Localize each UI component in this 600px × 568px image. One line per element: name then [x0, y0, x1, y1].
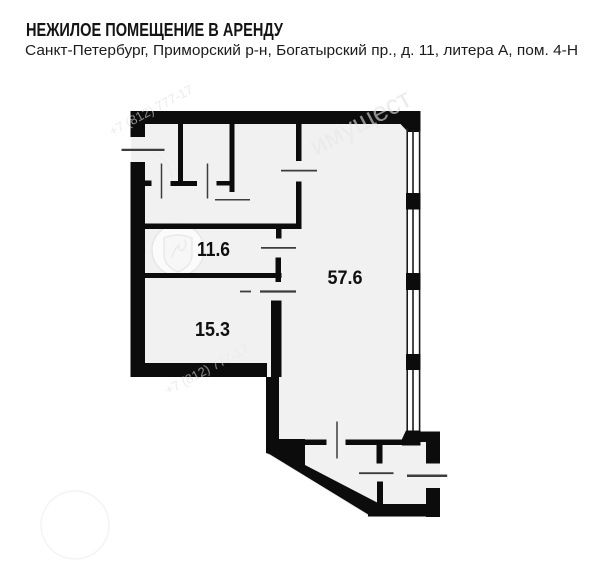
svg-text:15.3: 15.3 [195, 319, 230, 341]
svg-text:57.6: 57.6 [328, 268, 363, 289]
svg-text:Санкт-Петербург, Приморский р-: Санкт-Петербург, Приморский р-н, Богатыр… [25, 43, 578, 59]
svg-text:НЕЖИЛОЕ ПОМЕЩЕНИЕ В АРЕНДУ: НЕЖИЛОЕ ПОМЕЩЕНИЕ В АРЕНДУ [26, 19, 283, 40]
svg-text:11.6: 11.6 [197, 239, 230, 261]
